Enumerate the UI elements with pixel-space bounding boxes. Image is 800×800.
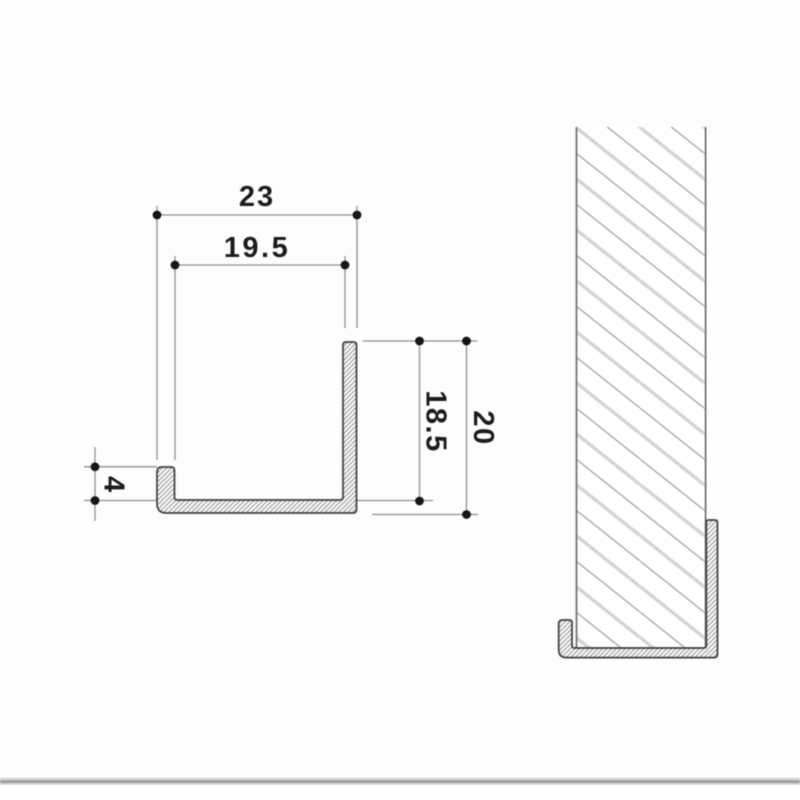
svg-text:23: 23 [239,181,275,213]
svg-text:20: 20 [467,410,499,445]
svg-text:18.5: 18.5 [420,390,452,452]
svg-text:4: 4 [98,476,130,492]
svg-text:19.5: 19.5 [224,232,290,264]
